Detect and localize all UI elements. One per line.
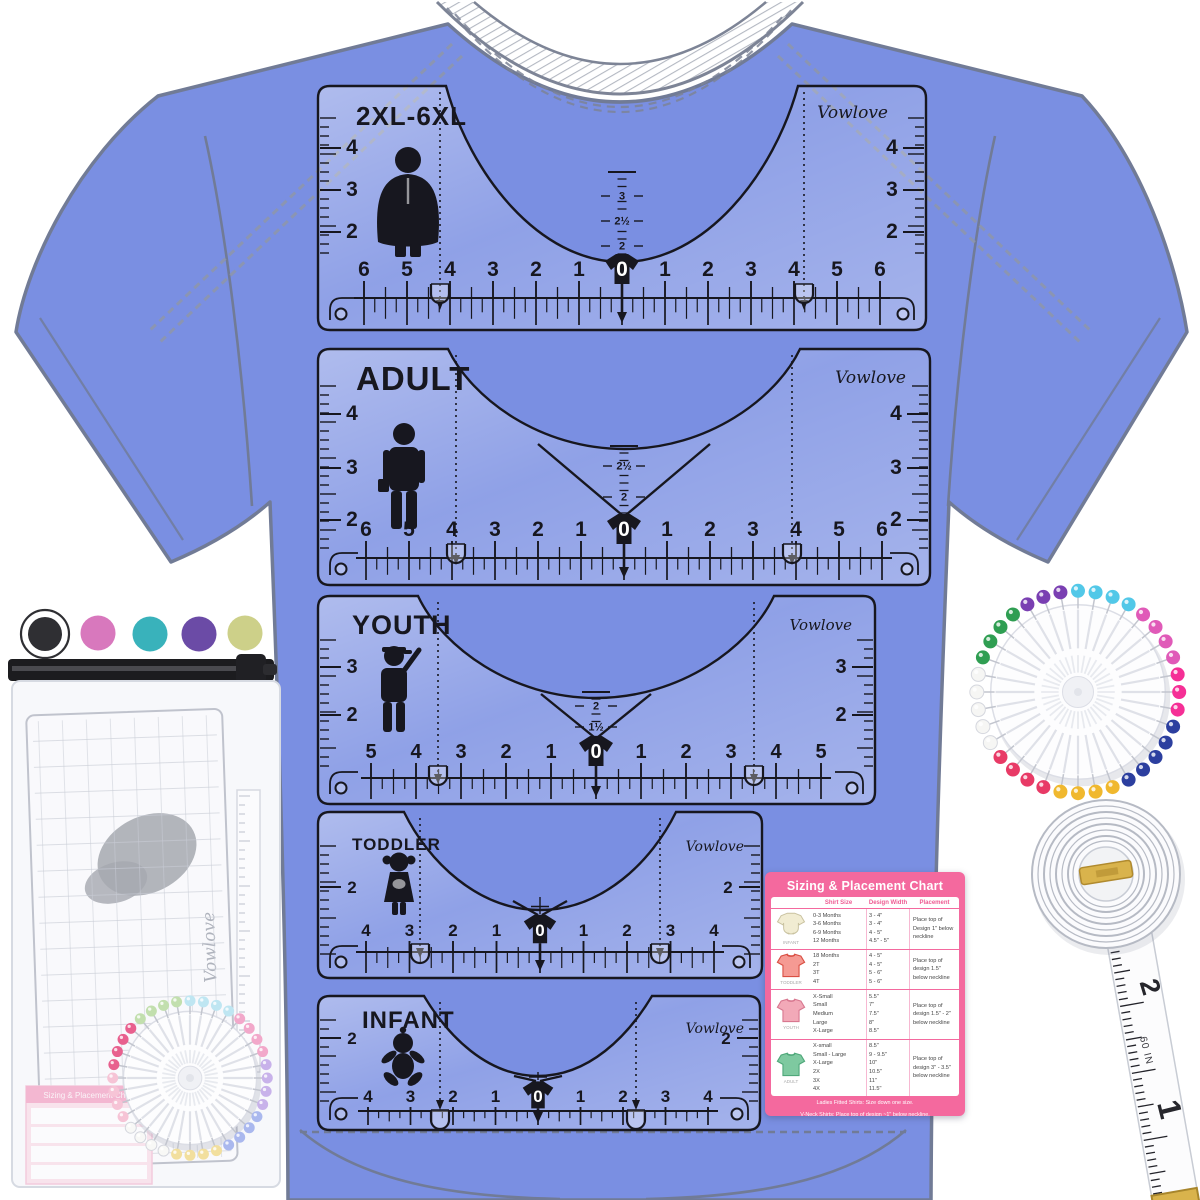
ruler-number: 4 <box>703 1087 713 1106</box>
chart-row-widths: 4 - 5"4 - 5"5 - 6"5 - 6" <box>866 950 910 990</box>
pearl-pin-head <box>118 1034 129 1045</box>
chart-table: Shirt Size Design Width Placement INFANT… <box>771 897 959 1096</box>
pin-mark-icon <box>447 544 465 563</box>
pearl-pin-head <box>198 1149 209 1160</box>
chart-size-value: 4T <box>813 978 864 987</box>
chart-size-value: 4X <box>813 1085 864 1094</box>
pearl-pin-head <box>1122 597 1136 611</box>
ruler-brand-logo: Vowlove <box>686 1021 744 1037</box>
pearl-pin-head <box>1089 785 1103 799</box>
chart-row-adult: ADULTX-smallSmall - LargeX-Large2X3X4X8.… <box>771 1040 959 1097</box>
pearl-pin-head <box>125 1122 136 1133</box>
color-dot-teal <box>133 617 168 652</box>
pearl-pin-head <box>261 1086 272 1097</box>
chart-size-value: 3X <box>813 1077 864 1086</box>
ruler-number: 1 <box>659 258 671 281</box>
pearl-pin-head <box>211 1145 222 1156</box>
ruler-side-number: 4 <box>890 402 902 425</box>
ruler-side-number: 3 <box>890 456 902 479</box>
chart-row-widths: 5.5"7"7.5"8"8.5" <box>866 990 910 1038</box>
pearl-pin-head <box>1006 763 1020 777</box>
color-dot-khaki <box>228 616 263 651</box>
screw-hole-icon <box>336 309 347 320</box>
screw-hole-icon <box>902 564 913 575</box>
ruler-number-zero: 0 <box>533 1087 542 1106</box>
chart-row-icon-cell: INFANT <box>771 910 811 947</box>
ruler-number: 3 <box>405 921 414 940</box>
center-scale-number: 2½ <box>614 216 629 228</box>
bag-zipper-slider <box>236 654 266 684</box>
ruler-number: 3 <box>487 258 499 281</box>
ruler-number: 4 <box>788 258 800 281</box>
pearl-pin-head <box>1053 585 1067 599</box>
pearl-pin-head <box>135 1132 146 1143</box>
chart-width-value: 8.5" <box>869 1042 907 1051</box>
screw-hole-icon <box>734 957 745 968</box>
chart-size-value: 18 Months <box>813 952 864 961</box>
chart-row-icon-cell: TODDLER <box>771 951 811 987</box>
chart-row-placement: Place top of Design 1" below neckline <box>910 914 959 943</box>
chart-row-icon-label: YOUTH <box>783 1025 799 1030</box>
ruler-brand-logo: Vowlove <box>835 368 906 388</box>
chart-width-value: 7" <box>869 1001 907 1010</box>
ruler-side-number: 3 <box>346 456 358 479</box>
ruler-side-number: 2 <box>347 1029 356 1048</box>
chart-row-widths: 8.5"9 - 9.5"10"10.5"11"11.5" <box>866 1040 910 1097</box>
color-dot-pink <box>81 616 116 651</box>
pearl-pin-head <box>971 703 985 717</box>
chart-row-sizes: 0-3 Months3-6 Months6-9 Months12 Months <box>811 909 866 949</box>
color-dot-black <box>28 617 62 651</box>
pearl-pin-head <box>1149 750 1163 764</box>
pearl-pin-head <box>1106 590 1120 604</box>
pearl-pin-head <box>1166 720 1180 734</box>
pearl-pin-head <box>1020 773 1034 787</box>
screw-hole-icon <box>847 783 858 794</box>
pearl-pin-head <box>125 1023 136 1034</box>
center-scale-number: 2 <box>593 701 599 713</box>
ruler-number: 4 <box>361 921 371 940</box>
ruler-number: 6 <box>874 258 886 281</box>
pearl-pin-head <box>261 1059 272 1070</box>
chart-header-icon-col <box>771 897 811 908</box>
pearl-pin-head <box>993 750 1007 764</box>
chart-size-value: 12 Months <box>813 937 864 946</box>
ruler-side-number: 2 <box>347 878 356 897</box>
ruler-side-number: 3 <box>835 656 846 678</box>
pearl-pin-head <box>1171 667 1185 681</box>
ruler-number-zero: 0 <box>618 518 630 541</box>
chart-size-value: 2X <box>813 1068 864 1077</box>
pearl-pin-head <box>234 1013 245 1024</box>
ruler-number: 1 <box>661 518 673 541</box>
ruler-side-number: 4 <box>346 402 358 425</box>
ruler-number: 1 <box>576 1087 585 1106</box>
ruler-size-label: INFANT <box>362 1007 455 1034</box>
chart-width-value: 9 - 9.5" <box>869 1051 907 1060</box>
chart-size-value: 6-9 Months <box>813 929 864 938</box>
chart-row-icon-cell: ADULT <box>771 1050 811 1086</box>
chart-size-value: 0-3 Months <box>813 912 864 921</box>
ruler-number: 2 <box>448 1087 457 1106</box>
pearl-pin-head <box>983 736 997 750</box>
ruler-side-number: 2 <box>346 220 358 243</box>
ruler-side-number: 4 <box>346 136 358 159</box>
pearl-pin-head <box>257 1046 268 1057</box>
pearl-pin-head <box>244 1122 255 1133</box>
chart-row-sizes: X-smallSmall - LargeX-Large2X3X4X <box>811 1040 866 1097</box>
chart-row-placement: Place top of design 1.5" below neckline <box>910 955 959 984</box>
ruler-number: 2 <box>702 258 714 281</box>
pin-mark-icon <box>431 284 449 303</box>
ruler-size-label: 2XL-6XL <box>356 101 467 131</box>
pearl-pin-head <box>112 1099 123 1110</box>
ruler-number: 4 <box>410 741 422 763</box>
pearl-pin-head <box>211 1000 222 1011</box>
ruler-number: 1 <box>575 518 587 541</box>
pearl-pin-head <box>993 620 1007 634</box>
ruler-number: 1 <box>635 741 646 763</box>
pearl-pin-head <box>976 650 990 664</box>
youth-shirt-icon <box>776 998 806 1024</box>
chart-width-value: 5 - 6" <box>869 978 907 987</box>
ruler-number: 2 <box>530 258 542 281</box>
ruler-number: 1 <box>492 921 501 940</box>
pearl-pin-head <box>1020 597 1034 611</box>
pearl-pin-head <box>158 1145 169 1156</box>
chart-header-row: Shirt Size Design Width Placement <box>771 897 959 909</box>
ruler-number: 2 <box>622 921 631 940</box>
chart-width-value: 4.5" - 5" <box>869 937 907 946</box>
pearl-pin-head <box>976 720 990 734</box>
chart-size-value: 3T <box>813 969 864 978</box>
ruler-number: 3 <box>725 741 736 763</box>
pin-mark-icon <box>783 544 801 563</box>
chart-width-value: 10" <box>869 1059 907 1068</box>
ruler-number-zero: 0 <box>535 921 544 940</box>
pearl-pin-head <box>1006 607 1020 621</box>
screw-hole-icon <box>336 564 347 575</box>
ruler-number: 3 <box>406 1087 415 1106</box>
pearl-pin-head <box>1171 703 1185 717</box>
pearl-pin-head <box>223 1006 234 1017</box>
pearl-pin-head <box>118 1111 129 1122</box>
chart-width-value: 3 - 4" <box>869 920 907 929</box>
ruler-number: 4 <box>709 921 719 940</box>
pearl-pin-head <box>1089 585 1103 599</box>
pearl-pin-head <box>971 667 985 681</box>
chart-row-icon-cell: YOUTH <box>771 996 811 1032</box>
pins-top-layer <box>970 584 1186 800</box>
pearl-pin-head <box>185 995 196 1006</box>
pearl-pin-head <box>108 1059 119 1070</box>
ruler-side-number: 4 <box>886 136 898 159</box>
ruler-number: 3 <box>455 741 466 763</box>
ruler-number: 3 <box>745 258 757 281</box>
center-scale-number: 2 <box>619 241 625 253</box>
pearl-pin-head <box>1122 773 1136 787</box>
ruler-number: 1 <box>579 921 588 940</box>
pearl-pin-head <box>244 1023 255 1034</box>
pin-mark-icon <box>411 944 429 963</box>
screw-hole-icon <box>898 309 909 320</box>
pin-mark-icon <box>745 766 763 785</box>
pearl-pins-wheel <box>970 584 1186 800</box>
chart-size-value: Large <box>813 1019 864 1028</box>
ruler-number: 5 <box>833 518 845 541</box>
pearl-pin-head <box>1036 590 1050 604</box>
chart-size-value: Small - Large <box>813 1051 864 1060</box>
pearl-pin-head <box>251 1111 262 1122</box>
chart-size-value: 2T <box>813 961 864 970</box>
ruler-number: 2 <box>500 741 511 763</box>
ruler-side-number: 2 <box>723 878 732 897</box>
ruler-number-zero: 0 <box>616 258 628 281</box>
pearl-pin-head <box>223 1139 234 1150</box>
ruler-number: 3 <box>489 518 501 541</box>
chart-size-value: 3-6 Months <box>813 920 864 929</box>
pin-mark-icon <box>431 1110 449 1129</box>
ruler-side-number: 3 <box>886 178 898 201</box>
pin-mark-icon <box>651 944 669 963</box>
pearl-pin-head <box>198 996 209 1007</box>
vinyl-color-dots <box>21 610 263 658</box>
tape-strip: 2 60 IN 1 <box>1105 923 1200 1200</box>
ruler-number: 3 <box>747 518 759 541</box>
bag-zipper-pull <box>263 664 277 675</box>
chart-size-value: X-Large <box>813 1027 864 1036</box>
chart-row-icon-label: ADULT <box>784 1079 798 1084</box>
ruler-number: 2 <box>680 741 691 763</box>
ruler-side-number: 2 <box>346 508 358 531</box>
pearl-pin-head <box>112 1046 123 1057</box>
chart-header-design-width: Design Width <box>866 897 910 908</box>
chart-width-value: 10.5" <box>869 1068 907 1077</box>
ruler-side-number: 2 <box>886 220 898 243</box>
ruler-number: 1 <box>573 258 585 281</box>
ruler-number: 4 <box>444 258 456 281</box>
ruler-side-number: 2 <box>890 508 902 531</box>
pearl-pin-head <box>1036 780 1050 794</box>
pearl-pin-head <box>146 1006 157 1017</box>
chart-row-toddler: TODDLER18 Months2T3T4T4 - 5"4 - 5"5 - 6"… <box>771 950 959 991</box>
pearl-pin-head <box>1053 785 1067 799</box>
center-scale-number: 1½ <box>588 722 603 734</box>
pearl-pin-head <box>1172 685 1186 699</box>
ruler-number: 1 <box>491 1087 500 1106</box>
pearl-pin-head <box>1136 607 1150 621</box>
chart-width-value: 3 - 4" <box>869 912 907 921</box>
ruler-size-label: YOUTH <box>352 610 452 640</box>
chart-footnote-2: V-Neck Shirts: Place top of design ~1" b… <box>771 1111 959 1116</box>
ruler-size-label: ADULT <box>356 360 470 397</box>
ruler-number: 6 <box>358 258 370 281</box>
pearl-pin-head <box>1106 780 1120 794</box>
pearl-pin-head <box>262 1073 273 1084</box>
pearl-pin-head <box>234 1132 245 1143</box>
chart-width-value: 11.5" <box>869 1085 907 1094</box>
color-dot-purple <box>182 617 217 652</box>
chart-width-value: 8" <box>869 1019 907 1028</box>
ruler-number: 5 <box>365 741 376 763</box>
pearl-pin-head <box>970 685 984 699</box>
screw-hole-icon <box>732 1109 743 1120</box>
adult-shirt-icon <box>776 1052 806 1078</box>
ruler-side-number: 3 <box>346 178 358 201</box>
ruler-side-number: 2 <box>835 704 846 726</box>
chart-header-shirt-size: Shirt Size <box>811 897 866 908</box>
pearl-pin-head <box>171 996 182 1007</box>
tape-coil <box>1032 800 1185 955</box>
chart-width-value: 7.5" <box>869 1010 907 1019</box>
center-scale-number: 3 <box>619 191 625 203</box>
pearl-pin-head <box>251 1034 262 1045</box>
chart-width-value: 5.5" <box>869 993 907 1002</box>
pearl-pin-head <box>171 1149 182 1160</box>
product-photo-canvas: 654321012345644332232½22XL-6XLVowlove654… <box>0 0 1200 1200</box>
chart-row-sizes: X-SmallSmallMediumLargeX-Large <box>811 990 866 1038</box>
sizing-placement-chart-card: Sizing & Placement Chart Shirt Size Desi… <box>765 872 965 1116</box>
scene: 654321012345644332232½22XL-6XLVowlove654… <box>0 0 1200 1200</box>
chart-size-value: X-small <box>813 1042 864 1051</box>
ruler-number: 1 <box>545 741 556 763</box>
pearl-pin-head <box>1159 634 1173 648</box>
chart-row-widths: 3 - 4"3 - 4"4 - 5"4.5" - 5" <box>866 909 910 949</box>
pearl-pin-head <box>158 1000 169 1011</box>
ruler-number: 3 <box>661 1087 670 1106</box>
screw-hole-icon <box>336 1109 347 1120</box>
chart-row-icon-label: INFANT <box>783 940 799 945</box>
pearl-pin-head <box>146 1139 157 1150</box>
ruler-brand-logo: Vowlove <box>686 839 744 855</box>
chart-size-value: Small <box>813 1001 864 1010</box>
screw-hole-icon <box>336 957 347 968</box>
chart-width-value: 4 - 5" <box>869 952 907 961</box>
chart-row-icon-label: TODDLER <box>780 980 801 985</box>
pearl-pin-head <box>1071 584 1085 598</box>
ruler-number: 2 <box>448 921 457 940</box>
chart-row-sizes: 18 Months2T3T4T <box>811 950 866 990</box>
pearl-pin-head <box>1136 763 1150 777</box>
chart-size-value: X-Small <box>813 993 864 1002</box>
pin-mark-icon <box>795 284 813 303</box>
chart-header-placement: Placement <box>910 897 959 908</box>
ruler-number: 5 <box>401 258 413 281</box>
ruler-number: 3 <box>666 921 675 940</box>
bag-ruler-brand: Vowlove <box>199 912 221 983</box>
pearl-pin-head <box>1159 736 1173 750</box>
ruler-number: 5 <box>831 258 843 281</box>
ruler-number: 4 <box>363 1087 373 1106</box>
chart-width-value: 11" <box>869 1077 907 1086</box>
pearl-pin-head <box>1166 650 1180 664</box>
pearl-pin-head <box>1071 786 1085 800</box>
chart-size-value: X-Large <box>813 1059 864 1068</box>
chart-row-youth: YOUTHX-SmallSmallMediumLargeX-Large5.5"7… <box>771 990 959 1039</box>
ruler-number-zero: 0 <box>590 741 601 763</box>
ruler-number: 2 <box>704 518 716 541</box>
center-scale-number: 2 <box>621 492 627 504</box>
pin-mark-icon <box>627 1110 645 1129</box>
pearl-pin-head <box>108 1086 119 1097</box>
chart-width-value: 8.5" <box>869 1027 907 1036</box>
ruler-size-label: TODDLER <box>352 835 441 854</box>
ruler-number: 4 <box>770 741 782 763</box>
chart-title: Sizing & Placement Chart <box>771 879 959 893</box>
chart-width-value: 4 - 5" <box>869 929 907 938</box>
chart-width-value: 4 - 5" <box>869 961 907 970</box>
chart-row-placement: Place top of design 3" - 3.5" below neck… <box>910 1053 959 1082</box>
tape-measure: 2 60 IN 1 <box>1032 800 1200 1200</box>
chart-row-placement: Place top of design 1.5" - 2" below neck… <box>910 1000 959 1029</box>
ruler-number: 5 <box>815 741 826 763</box>
chart-size-value: Medium <box>813 1010 864 1019</box>
ruler-number: 6 <box>876 518 888 541</box>
pearl-pin-head <box>983 634 997 648</box>
toddler-shirt-icon <box>776 953 806 979</box>
chart-row-infant: INFANT0-3 Months3-6 Months6-9 Months12 M… <box>771 909 959 950</box>
pearl-pin-head <box>257 1099 268 1110</box>
pearl-pin-head <box>1149 620 1163 634</box>
screw-hole-icon <box>336 783 347 794</box>
bag-zipper-teeth <box>12 666 270 671</box>
ruler-number: 2 <box>532 518 544 541</box>
pearl-pin-head <box>185 1150 196 1161</box>
chart-width-value: 5 - 6" <box>869 969 907 978</box>
bag-mini-chart-title: Sizing & Placement Chart <box>43 1091 135 1100</box>
pin-mark-icon <box>429 766 447 785</box>
pearl-pin-head <box>107 1073 118 1084</box>
ruler-number: 6 <box>360 518 372 541</box>
center-scale-number: 2½ <box>616 461 631 473</box>
ruler-number: 2 <box>618 1087 627 1106</box>
ruler-brand-logo: Vowlove <box>789 616 852 634</box>
infant-onesie-icon <box>776 912 806 939</box>
chart-footnote-1: Ladies Fitted Shirts: Size down one size… <box>771 1099 959 1107</box>
ruler-side-number: 2 <box>346 704 357 726</box>
pearl-pin-head <box>135 1013 146 1024</box>
ruler-side-number: 3 <box>346 656 357 678</box>
ruler-brand-logo: Vowlove <box>817 103 888 123</box>
